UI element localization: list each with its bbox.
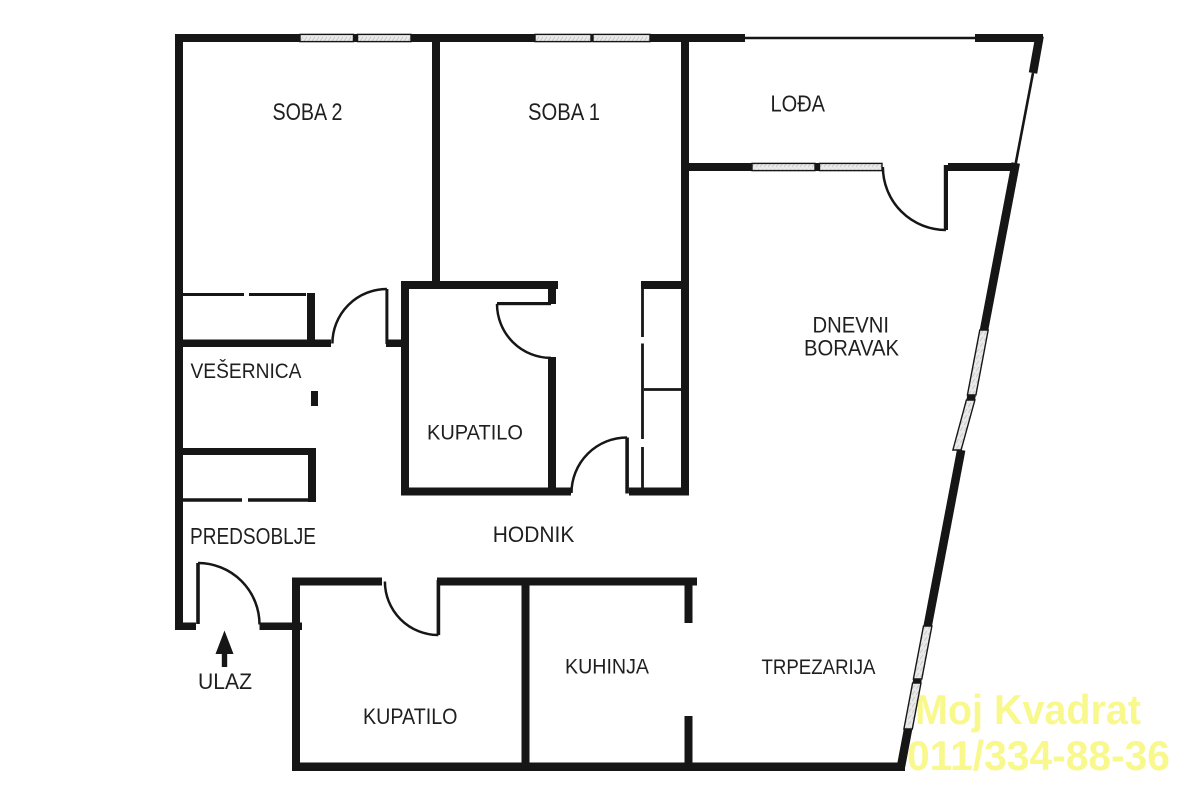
svg-text:VEŠERNICA: VEŠERNICA — [191, 358, 303, 383]
svg-text:HODNIK: HODNIK — [493, 522, 575, 547]
svg-text:DNEVNI: DNEVNI — [813, 313, 890, 338]
svg-text:KUHINJA: KUHINJA — [565, 655, 650, 679]
svg-text:SOBA 1: SOBA 1 — [528, 99, 600, 126]
svg-text:BORAVAK: BORAVAK — [804, 336, 899, 361]
svg-text:PREDSOBLJE: PREDSOBLJE — [190, 523, 316, 549]
svg-text:KUPATILO: KUPATILO — [363, 704, 458, 729]
svg-text:Moj Kvadrat: Moj Kvadrat — [915, 686, 1141, 733]
svg-text:TRPEZARIJA: TRPEZARIJA — [762, 655, 877, 679]
svg-text:SOBA 2: SOBA 2 — [273, 99, 343, 126]
svg-text:011/334-88-36: 011/334-88-36 — [907, 732, 1170, 779]
svg-text:ULAZ: ULAZ — [198, 669, 252, 694]
svg-text:LOĐA: LOĐA — [771, 91, 826, 117]
svg-text:KUPATILO: KUPATILO — [427, 421, 523, 445]
